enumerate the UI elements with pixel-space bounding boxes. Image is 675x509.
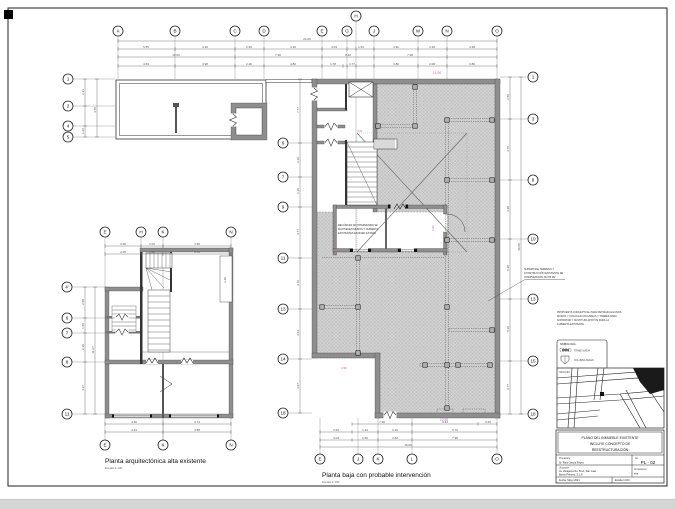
- dim-label: 4.03: [333, 436, 339, 440]
- dim-label: 4.90: [202, 45, 208, 49]
- dim-label: 4.80: [290, 62, 296, 66]
- drawing-sheet: 24.00 5.55 4.90 2.20 4.90 4.03 1.54 4.90…: [0, 0, 675, 509]
- grid-bubble: E: [100, 440, 110, 450]
- plan-title-alta: Planta arquitectónica alta existente: [105, 458, 206, 465]
- map-label: CROQUIS: [559, 372, 570, 374]
- area-note-line: CONSTRUCCIÓN EXISTENTE DE: [524, 272, 564, 275]
- svg-text:J: J: [373, 29, 375, 34]
- dim-label: 6.70: [452, 428, 458, 432]
- dim-label: 2.20: [246, 62, 252, 66]
- grid-bubble: 9: [278, 202, 288, 212]
- grid-bubble: 6: [278, 138, 288, 148]
- dim-label: 4.70: [506, 146, 510, 152]
- svg-text:6: 6: [66, 316, 69, 321]
- svg-text:9: 9: [282, 205, 285, 210]
- dim-label: 8.40: [345, 53, 351, 57]
- dim-label: 2.58: [81, 299, 85, 305]
- grid-bubble: O: [492, 454, 502, 464]
- room-note-line: RECÁMARA NO INTERVENIDA SE: [338, 224, 378, 227]
- grid-bubble: 5: [63, 132, 73, 142]
- pink-dim: 12.55: [440, 418, 448, 422]
- dim-label: 5.55: [143, 45, 149, 49]
- grid-bubble: N: [226, 227, 236, 237]
- location-map: CROQUIS: [557, 368, 664, 428]
- map-site-marker: [600, 392, 604, 396]
- dim-label: 4.70: [296, 280, 300, 286]
- svg-text:N: N: [229, 443, 232, 448]
- svg-text:2: 2: [67, 104, 70, 109]
- dim-label: 4.43: [131, 428, 137, 432]
- svg-text:10: 10: [530, 237, 536, 242]
- dim-label: 24.00: [303, 37, 311, 41]
- grid-bubble: 11: [62, 409, 72, 419]
- dim-label: 2.50: [506, 94, 510, 100]
- units-label: Acotaciones:: [634, 468, 648, 471]
- grid-bubble: H: [351, 11, 361, 21]
- dim-label: 5.20: [506, 326, 510, 332]
- grid-bubble: K: [158, 440, 168, 450]
- dim-label: 2.92: [429, 45, 435, 49]
- sheet-title-line: INCLUYE CONCEPTO DE: [590, 442, 631, 446]
- grid-bubble: 4: [63, 121, 73, 131]
- grid-bubble: A: [113, 26, 123, 36]
- scale-field: Escala 1:100: [615, 479, 630, 482]
- dim-label: 3.80: [469, 62, 475, 66]
- grid-bubble: B: [170, 26, 180, 36]
- grid-bubble: 1: [528, 72, 538, 82]
- dim-label: 7.90: [379, 420, 385, 424]
- pink-dim: 0.60: [334, 248, 340, 252]
- grid-bubble: 13: [528, 294, 538, 304]
- dim-label: 4.58: [194, 242, 200, 246]
- svg-text:E: E: [103, 443, 106, 448]
- grid-bubble: 7: [278, 172, 288, 182]
- dim-label: 1.40: [223, 277, 227, 283]
- grid-bubble: 8: [528, 175, 538, 185]
- grid-bubble: E: [315, 454, 325, 464]
- grid-bubble: 4': [62, 282, 72, 292]
- svg-text:N: N: [445, 29, 448, 34]
- plan-title-baja: Planta baja con probable intervención: [322, 472, 431, 479]
- dim-label: 7.98: [407, 53, 413, 57]
- dim-label: 2.52: [333, 428, 339, 432]
- grid-bubble: 3: [528, 114, 538, 124]
- dim-label: 0.60: [485, 420, 491, 424]
- grid-bubble: 1: [63, 74, 73, 84]
- grid-bubble: J: [369, 26, 379, 36]
- svg-text:1: 1: [67, 77, 70, 82]
- svg-text:13: 13: [530, 297, 536, 302]
- svg-text:7: 7: [66, 331, 69, 336]
- dim-label: 4.90: [393, 45, 399, 49]
- dim-label: 18.06: [404, 443, 412, 447]
- dim-label: 1.25: [296, 188, 300, 194]
- dim-label: 1.54: [358, 45, 364, 49]
- general-note-line: MUROS Y COLOCAR COLUMNAS Y TRABES PARA: [557, 315, 617, 318]
- dim-label: 2.28: [296, 157, 300, 163]
- svg-text:E: E: [320, 29, 323, 34]
- room-note-line: MANTIENEN MUROS Y CUBIERTA: [338, 228, 378, 231]
- area-note-line: SUPERFICIE TERRENO Y: [524, 268, 555, 271]
- grid-bubble: 7: [62, 328, 72, 338]
- grid-bubble: K: [158, 227, 168, 237]
- legend-box: SIMBOLOGÍA TRABE NUEVA COLUMNA NUEVA: [557, 340, 607, 369]
- legend-item-label: COLUMNA NUEVA: [574, 359, 594, 362]
- dim-label: 2.05: [120, 250, 126, 254]
- dim-label: 1.50: [362, 436, 368, 440]
- general-note-line: PROPUESTA CONCEPTUAL PARA RETIRAR ALGUNO…: [557, 311, 622, 314]
- sheet-title-line: PLANO DEL INMUEBLE EXISTENTE: [582, 436, 640, 440]
- dim-label: 3.10: [392, 428, 398, 432]
- grid-bubble: 8: [62, 357, 72, 367]
- svg-text:J: J: [357, 457, 359, 462]
- grid-bubble: K: [373, 454, 383, 464]
- grid-bubble: 14: [278, 354, 288, 364]
- dim-label: 10.00: [172, 53, 180, 57]
- grid-bubble: 11: [278, 253, 288, 263]
- dim-label: 2.30: [81, 344, 85, 350]
- grid-bubble: C: [230, 26, 240, 36]
- dim-label: 5.75: [194, 250, 200, 254]
- dim-label: 1.50: [81, 323, 85, 329]
- svg-text:5: 5: [67, 135, 70, 140]
- grid-bubble: M: [413, 26, 423, 36]
- dim-label: 1.80: [149, 250, 155, 254]
- svg-text:N: N: [229, 230, 232, 235]
- dim-label: 3.80: [393, 62, 399, 66]
- dim-label: 2.02: [149, 242, 155, 246]
- dim-label: 7.98: [452, 436, 458, 440]
- grid-bubble: 13: [278, 304, 288, 314]
- grid-bubble: D: [259, 26, 269, 36]
- svg-text:7: 7: [282, 175, 285, 180]
- dim-label: 4.90: [290, 45, 296, 49]
- grid-bubble: J: [353, 454, 363, 464]
- svg-text:O: O: [495, 457, 499, 462]
- owner-label: Propietario:: [559, 457, 571, 460]
- svg-text:18: 18: [280, 411, 286, 416]
- area-note-line: INTERVENCIÓN 302.55 M2: [524, 276, 556, 279]
- svg-text:6: 6: [282, 141, 285, 146]
- grid-bubble: 2: [63, 101, 73, 111]
- legend-title: SIMBOLOGÍA: [560, 343, 576, 346]
- dim-label: 30.08: [517, 243, 521, 251]
- dim-label: 4.77: [296, 229, 300, 235]
- dim-label: 4.98: [469, 45, 475, 49]
- units-value: mts.: [634, 473, 639, 476]
- owner-value: Sr. Raúl García Reyes: [559, 462, 585, 465]
- title-block-table: PLANO DEL INMUEBLE EXISTENTE INCLUYE CON…: [556, 430, 664, 483]
- plan-scale-baja: Escala 1:100: [322, 480, 340, 484]
- grid-bubble: E: [100, 227, 110, 237]
- sheet-no-label: No.: [635, 458, 639, 460]
- svg-text:H: H: [139, 230, 142, 235]
- svg-text:4: 4: [67, 124, 70, 129]
- bottom-band: [0, 500, 675, 509]
- grid-bubble: H: [136, 227, 146, 237]
- dim-label: 4.03: [331, 45, 337, 49]
- dim-label: 4.98: [506, 206, 510, 212]
- dim-label: 5.20: [506, 265, 510, 271]
- svg-text:14: 14: [280, 357, 286, 362]
- pink-dim: 4.90: [341, 366, 347, 370]
- dim-label: 1.26: [81, 128, 85, 134]
- svg-text:13: 13: [280, 307, 286, 312]
- dim-label: 4.50: [131, 420, 137, 424]
- dim-label: 4.70: [93, 107, 97, 113]
- grid-bubble: 10: [528, 234, 538, 244]
- sheet-number: PL - 02: [641, 460, 656, 465]
- grid-bubble: 15: [528, 356, 538, 366]
- grid-bubble: O: [492, 26, 502, 36]
- closet-x: [349, 82, 373, 97]
- dim-label: 1.78: [330, 62, 336, 66]
- grid-bubble: G: [342, 26, 352, 36]
- svg-text:11: 11: [65, 412, 70, 417]
- grid-bubble: N: [442, 26, 452, 36]
- svg-text:18: 18: [530, 412, 536, 417]
- dim-label: 4.58: [194, 428, 200, 432]
- room-note-line: EXISTENTES EN BUEN ESTADO: [338, 232, 376, 235]
- svg-text:11: 11: [281, 256, 286, 261]
- dim-label: 6.77: [506, 384, 510, 390]
- dim-label: 4.57: [296, 383, 300, 389]
- sheet-svg: 24.00 5.55 4.90 2.20 4.90 4.03 1.54 4.90…: [0, 0, 675, 509]
- grid-bubble: N: [226, 440, 236, 450]
- dim-label: 3.73: [194, 420, 200, 424]
- svg-text:8: 8: [66, 360, 69, 365]
- svg-text:H: H: [354, 14, 357, 19]
- dim-label: 2.33: [81, 89, 85, 95]
- svg-text:3: 3: [532, 117, 535, 122]
- grid-bubble: 18: [278, 408, 288, 418]
- dim-label: 2.08: [429, 62, 435, 66]
- svg-text:4': 4': [65, 285, 69, 290]
- pink-dim: 0.90: [431, 225, 435, 231]
- grid-bubble: E: [317, 26, 327, 36]
- svg-text:L: L: [411, 457, 414, 462]
- dim-label: 7.90: [275, 53, 281, 57]
- dim-label: 7.77: [296, 107, 300, 113]
- grid-bubble: 18: [528, 409, 538, 419]
- plan-scale-alta: Escala 1:100: [105, 466, 123, 470]
- svg-text:O: O: [495, 29, 499, 34]
- grid-bubble: 6: [62, 313, 72, 323]
- dim-label: 4.63: [143, 62, 149, 66]
- alta-stair: [146, 253, 172, 352]
- dim-label: 4.54: [296, 330, 300, 336]
- svg-text:15: 15: [530, 359, 536, 364]
- dim-label: 4.98: [202, 62, 208, 66]
- svg-text:1: 1: [532, 75, 535, 80]
- svg-text:8: 8: [532, 178, 535, 183]
- svg-text:G: G: [345, 29, 349, 34]
- pink-dim: 11.00: [433, 71, 442, 75]
- corner-mark: [4, 10, 13, 19]
- dim-label: 2.20: [246, 45, 252, 49]
- svg-text:E: E: [103, 230, 106, 235]
- dim-label: 3.52: [392, 436, 398, 440]
- general-note-line: SOPORTAR Y SUSTITUIR APOYOS PARA LA: [557, 319, 609, 322]
- date-field: Fecha: Mayo 2021: [559, 479, 580, 482]
- dim-label: 3.26: [120, 242, 126, 246]
- grid-bubble: L: [407, 454, 417, 464]
- location-value-line: Barrio Primero, S.L.P.: [559, 474, 583, 477]
- dim-label: 11.27: [91, 346, 95, 354]
- general-note-line: CUBIERTA EXISTENTE.: [557, 323, 585, 326]
- sheet-title-line: REESTRUCTURACIÓN: [592, 447, 629, 452]
- pink-dim: 3.01: [357, 129, 363, 133]
- dim-label: 1.77: [349, 62, 355, 66]
- dim-label: 4.37: [81, 385, 85, 391]
- svg-text:B: B: [173, 29, 176, 34]
- dim-label: 1.33: [362, 428, 368, 432]
- svg-text:M: M: [416, 29, 420, 34]
- svg-text:E: E: [318, 457, 321, 462]
- legend-item-label: TRABE NUEVA: [574, 350, 591, 353]
